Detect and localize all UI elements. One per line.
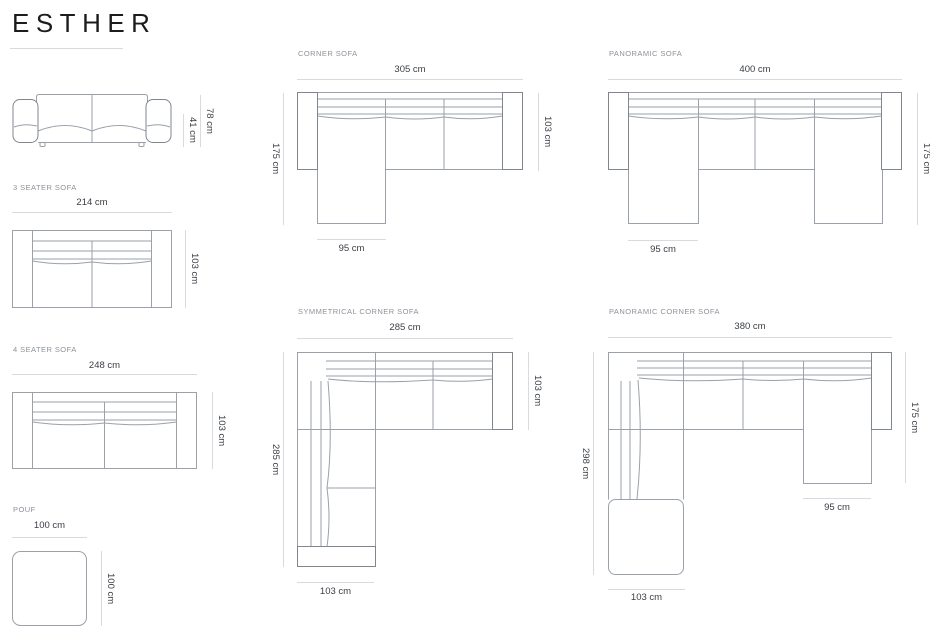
corner-seat-depth-dim-line xyxy=(538,93,539,171)
panoramic-chaise-dim-line xyxy=(628,240,698,241)
pouf-height-dim: 100 cm xyxy=(104,551,116,626)
four-seater-depth-dim: 103 cm xyxy=(215,392,227,469)
symmetrical-width-dim: 285 cm xyxy=(297,322,513,333)
pouf-top-view-drawing xyxy=(12,551,87,626)
dimension-sheet: ESTHER 78 cm 41 cm 3 SEATER SOFA 214 cm … xyxy=(0,0,930,630)
sofa-front-view-drawing xyxy=(12,91,172,149)
panoramic-width-dim: 400 cm xyxy=(608,64,902,75)
four-seater-depth-dim-line xyxy=(212,392,213,469)
panoramic-sofa-label: PANORAMIC SOFA xyxy=(609,49,682,58)
front-height-dim-line xyxy=(200,95,201,147)
panoramic-chaise-dim: 95 cm xyxy=(628,244,698,255)
three-seater-label: 3 SEATER SOFA xyxy=(13,183,77,192)
symmetrical-corner-label: SYMMETRICAL CORNER SOFA xyxy=(298,307,419,316)
panoramic-corner-bottom-dim-line xyxy=(608,589,685,590)
front-height-dim: 78 cm xyxy=(203,95,215,147)
title-underline xyxy=(10,48,123,49)
panoramic-corner-right-depth-dim-line xyxy=(905,352,906,483)
panoramic-corner-label: PANORAMIC CORNER SOFA xyxy=(609,307,720,316)
three-seater-width-dim-line xyxy=(12,212,172,213)
panoramic-corner-chaise-dim-line xyxy=(803,498,871,499)
corner-side-depth-dim-line xyxy=(283,93,284,225)
symmetrical-side-depth-dim-line xyxy=(283,352,284,567)
panoramic-corner-side-depth-dim: 298 cm xyxy=(579,352,591,575)
panoramic-corner-right-depth-dim: 175 cm xyxy=(908,352,920,483)
panoramic-corner-width-dim-line xyxy=(608,337,892,338)
symmetrical-bottom-dim-line xyxy=(297,582,374,583)
corner-top-view-drawing xyxy=(297,92,523,225)
panoramic-side-depth-dim-line xyxy=(917,93,918,225)
corner-width-dim: 305 cm xyxy=(297,64,523,75)
corner-sofa-label: CORNER SOFA xyxy=(298,49,358,58)
symmetrical-side-depth-dim: 285 cm xyxy=(269,352,281,567)
corner-width-dim-line xyxy=(297,79,523,80)
front-seat-height-dim-line xyxy=(183,114,184,147)
three-seater-depth-dim-line xyxy=(185,230,186,308)
panoramic-corner-width-dim: 380 cm xyxy=(608,321,892,332)
panoramic-corner-side-depth-dim-line xyxy=(593,352,594,575)
three-seater-top-view-drawing xyxy=(12,230,172,308)
front-seat-height-dim: 41 cm xyxy=(186,112,198,148)
four-seater-width-dim: 248 cm xyxy=(12,360,197,371)
symmetrical-bottom-dim: 103 cm xyxy=(297,586,374,597)
pouf-label: POUF xyxy=(13,505,36,514)
four-seater-width-dim-line xyxy=(12,374,197,375)
four-seater-label: 4 SEATER SOFA xyxy=(13,345,77,354)
pouf-height-dim-line xyxy=(101,551,102,626)
pouf-width-dim-line xyxy=(12,537,87,538)
four-seater-top-view-drawing xyxy=(12,392,197,469)
corner-seat-depth-dim: 103 cm xyxy=(541,93,553,171)
panoramic-corner-top-view-drawing xyxy=(608,352,892,575)
symmetrical-seat-depth-dim: 103 cm xyxy=(531,352,543,430)
corner-side-depth-dim: 175 cm xyxy=(269,93,281,225)
corner-chaise-dim-line xyxy=(317,239,386,240)
three-seater-width-dim: 214 cm xyxy=(12,197,172,208)
panoramic-corner-bottom-dim: 103 cm xyxy=(608,592,685,603)
corner-chaise-dim: 95 cm xyxy=(317,243,386,254)
three-seater-depth-dim: 103 cm xyxy=(188,230,200,308)
panoramic-width-dim-line xyxy=(608,79,902,80)
panoramic-side-depth-dim: 175 cm xyxy=(920,93,930,225)
page-title: ESTHER xyxy=(12,8,156,39)
panoramic-top-view-drawing xyxy=(608,92,902,225)
symmetrical-width-dim-line xyxy=(297,338,513,339)
pouf-width-dim: 100 cm xyxy=(12,520,87,531)
panoramic-corner-chaise-dim: 95 cm xyxy=(803,502,871,513)
symmetrical-seat-depth-dim-line xyxy=(528,352,529,430)
symmetrical-corner-top-view-drawing xyxy=(297,352,513,567)
